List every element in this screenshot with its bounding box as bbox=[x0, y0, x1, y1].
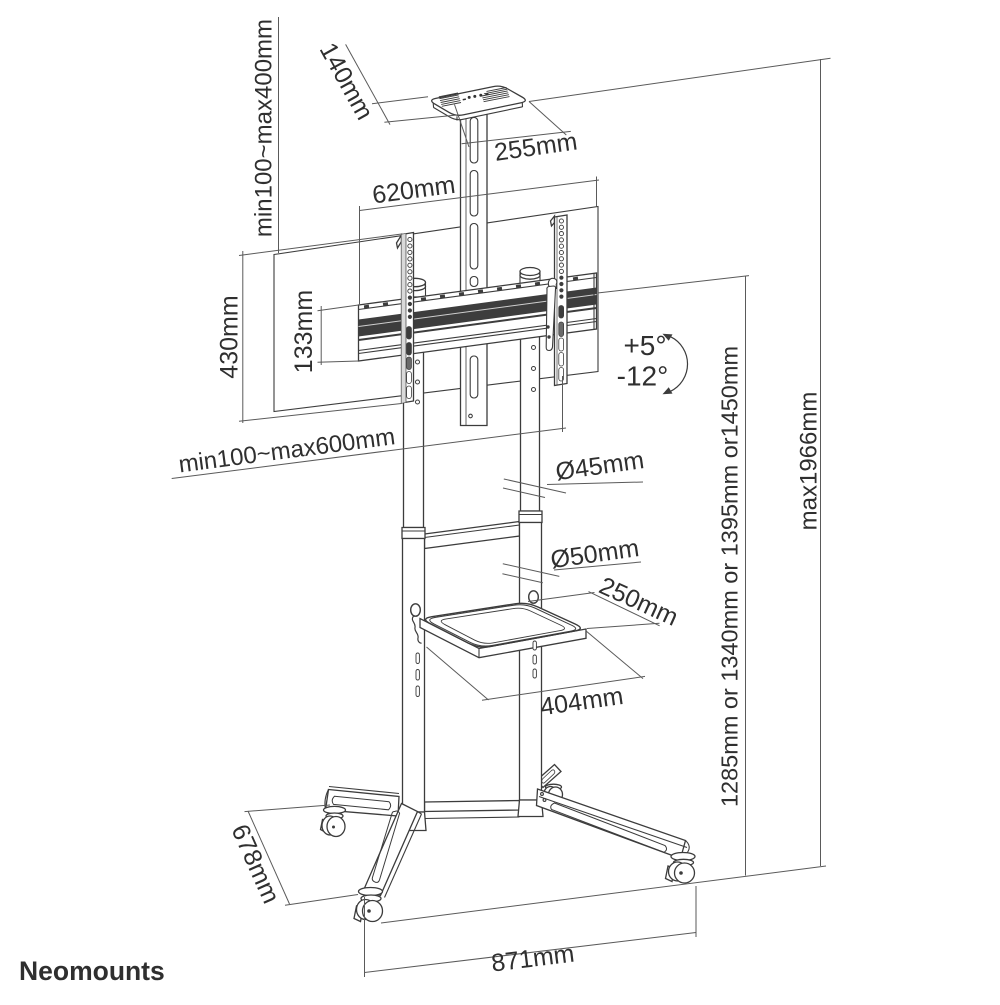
svg-text:133mm: 133mm bbox=[290, 290, 318, 373]
svg-text:430mm: 430mm bbox=[216, 295, 244, 378]
svg-text:min100~max400mm: min100~max400mm bbox=[250, 19, 277, 237]
svg-text:max1966mm: max1966mm bbox=[795, 392, 822, 531]
svg-text:1285mm or 1340mm or 1395mm or1: 1285mm or 1340mm or 1395mm or1450mm bbox=[717, 346, 743, 807]
svg-text:Neomounts: Neomounts bbox=[19, 956, 165, 986]
svg-text:+5°: +5° bbox=[623, 330, 666, 361]
svg-text:-12°: -12° bbox=[617, 360, 669, 391]
